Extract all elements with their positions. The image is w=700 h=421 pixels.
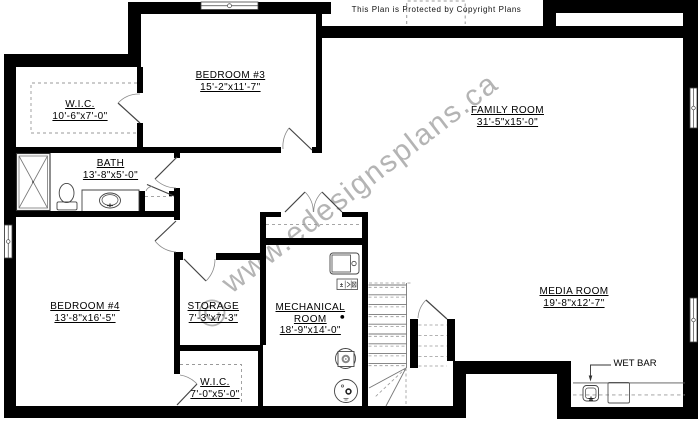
svg-text:www.edesignsplans.ca: www.edesignsplans.ca (215, 66, 505, 300)
